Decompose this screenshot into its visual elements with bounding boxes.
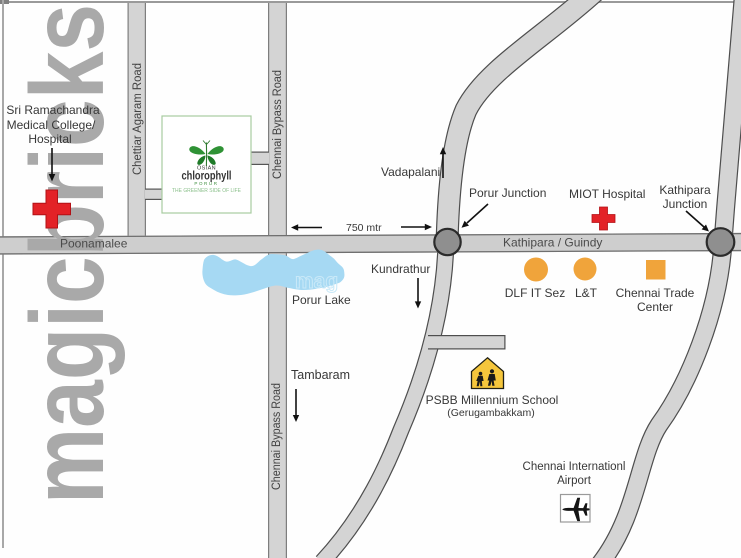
svg-text:Tambaram: Tambaram — [291, 368, 350, 382]
svg-text:Porur Lake: Porur Lake — [292, 293, 351, 307]
svg-text:Chennai Bypass Road: Chennai Bypass Road — [272, 70, 284, 179]
svg-text:MIOT Hospital: MIOT Hospital — [569, 187, 645, 201]
svg-text:Kathipara / Guindy: Kathipara / Guindy — [503, 235, 602, 249]
svg-text:DLF IT Sez: DLF IT Sez — [505, 286, 565, 300]
svg-text:Porur Junction: Porur Junction — [469, 186, 546, 200]
svg-text:Kundrathur: Kundrathur — [371, 262, 430, 276]
svg-text:magicbricks: magicbricks — [10, 4, 126, 504]
svg-text:750 mtr: 750 mtr — [346, 222, 382, 234]
svg-text:Vadapalani: Vadapalani — [381, 165, 440, 179]
svg-text:PORUR: PORUR — [194, 181, 218, 186]
svg-text:Kathipara: Kathipara — [659, 183, 711, 197]
svg-text:Center: Center — [637, 300, 673, 314]
svg-text:(Gerugambakkam): (Gerugambakkam) — [447, 407, 535, 419]
svg-text:Airport: Airport — [557, 475, 592, 487]
svg-text:Chennai Trade: Chennai Trade — [616, 286, 695, 300]
svg-text:mag: mag — [295, 270, 338, 293]
svg-text:Junction: Junction — [663, 197, 708, 211]
svg-text:Medical College/: Medical College/ — [7, 118, 96, 132]
svg-text:Poonamalee: Poonamalee — [60, 237, 128, 251]
svg-text:PSBB Millennium School: PSBB Millennium School — [426, 393, 559, 407]
svg-text:Sri Ramachandra: Sri Ramachandra — [6, 103, 100, 117]
svg-text:Chettiar Agaram Road: Chettiar Agaram Road — [132, 63, 144, 175]
svg-text:Chennai Bypass Road: Chennai Bypass Road — [271, 383, 283, 490]
svg-text:L&T: L&T — [575, 286, 598, 300]
svg-text:Hospital: Hospital — [28, 132, 71, 146]
svg-text:THE GREENER SIDE OF LIFE: THE GREENER SIDE OF LIFE — [172, 188, 241, 194]
svg-text:Chennai Internationl: Chennai Internationl — [523, 461, 626, 473]
